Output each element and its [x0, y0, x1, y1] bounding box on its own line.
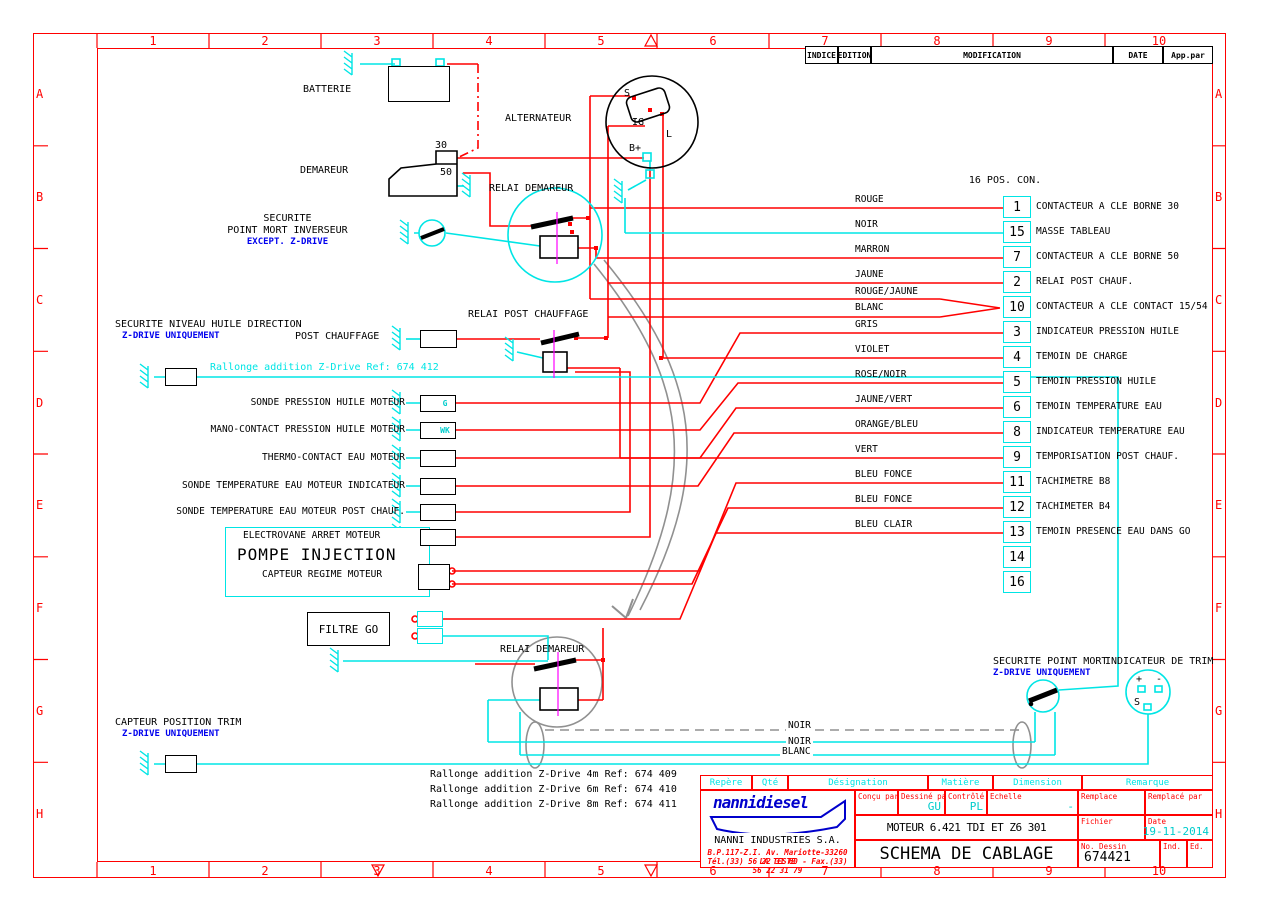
connector-desc: TACHIMETER B4: [1036, 502, 1110, 512]
connector-pin-16: 16: [1003, 571, 1031, 593]
red-wires: [412, 64, 1003, 710]
connector-desc: MASSE TABLEAU: [1036, 227, 1110, 237]
grid-col-label-bottom: 2: [257, 864, 273, 878]
battery-box: [388, 66, 450, 102]
grid-row-label-right: D: [1215, 396, 1222, 410]
harness-wire-label: NOIR: [786, 721, 813, 731]
tb-logo-cell: nannidiesel NANNI INDUSTRIES S.A. B.P.11…: [700, 790, 855, 868]
connector-pin-1: 1: [1003, 196, 1031, 218]
grid-col-label-bottom: 4: [481, 864, 497, 878]
tb-remplace: Remplace: [1078, 790, 1145, 815]
tb-col-dimension: Dimension: [993, 775, 1082, 790]
tb-concu: Conçu par: [855, 790, 898, 815]
grid-row-label-right: H: [1215, 807, 1222, 821]
harness-wire-label: BLANC: [780, 747, 813, 757]
starter-relay-label: RELAI DEMAREUR: [489, 183, 573, 194]
tb-col-qte: Qté: [752, 775, 788, 790]
extension-412-label: Rallonge addition Z-Drive Ref: 674 412: [210, 362, 439, 373]
glow-plug-box: [420, 330, 457, 348]
grid-row-label-left: E: [36, 498, 43, 512]
connector-pin-9: 9: [1003, 446, 1031, 468]
trim-indicator-label: INDICATEUR DE TRIM: [1105, 656, 1213, 667]
revision-edition: EDITION: [838, 46, 871, 64]
connector-pin-5: 5: [1003, 371, 1031, 393]
grid-col-label-bottom: 9: [1041, 864, 1057, 878]
rpm-sensor-label: CAPTEUR REGIME MOTEUR: [262, 570, 382, 580]
grid-row-label-right: C: [1215, 293, 1222, 307]
tb-col-remarque: Remarque: [1082, 775, 1213, 790]
sensor-box: [420, 504, 456, 521]
black-components: [389, 71, 1057, 710]
oil-level-safety-note: Z-DRIVE UNIQUEMENT: [122, 332, 220, 342]
grid-col-label-bottom: 3: [369, 864, 385, 878]
grid-row-label-left: D: [36, 396, 43, 410]
relay-top-circle: [508, 188, 602, 282]
tb-ed: Ed.: [1187, 840, 1213, 868]
grid-row-label-left: H: [36, 807, 43, 821]
extension-ref-line: Rallonge addition Z-Drive 8m Ref: 674 41…: [430, 799, 677, 810]
trim-position-sensor-box: [165, 755, 197, 773]
connector-wire-label: GRIS: [855, 320, 878, 330]
grid-col-label-top: 10: [1151, 34, 1167, 48]
connector-wire-label: JAUNE: [855, 270, 884, 280]
connector-pin-8: 8: [1003, 421, 1031, 443]
connector-wire-label: BLEU CLAIR: [855, 520, 912, 530]
connector-pin-10: 10: [1003, 296, 1031, 318]
tb-no-dessin: No. Dessin674421: [1078, 840, 1160, 868]
starter-label: DEMAREUR: [300, 165, 348, 176]
tb-col-matiere: Matière: [928, 775, 993, 790]
rpm-sensor-box: [418, 564, 450, 590]
grid-col-label-bottom: 10: [1151, 864, 1167, 878]
revision-modification: MODIFICATION: [871, 46, 1113, 64]
tb-controle: Contrôlé parPL: [945, 790, 987, 815]
connector-desc: RELAI POST CHAUF.: [1036, 277, 1133, 287]
connector-pin-2: 2: [1003, 271, 1031, 293]
tb-echelle: Echelle-: [987, 790, 1078, 815]
sensor-label: SONDE TEMPERATURE EAU MOTEUR INDICATEUR: [110, 481, 405, 491]
sensor-tag: WK: [436, 426, 454, 435]
magenta-lines: [554, 212, 558, 716]
grid-row-label-right: G: [1215, 704, 1222, 718]
connector-pin-13: 13: [1003, 521, 1031, 543]
alt-terminal-s: S: [624, 88, 630, 99]
tb-dessine: Dessiné parGU: [898, 790, 945, 815]
grid-col-label-top: 9: [1041, 34, 1057, 48]
grid-row-label-left: B: [36, 190, 43, 204]
glow-relay-label: RELAI POST CHAUFFAGE: [468, 309, 588, 320]
trim-position-sensor-label: CAPTEUR POSITION TRIM: [115, 717, 241, 728]
connector-desc: TEMOIN DE CHARGE: [1036, 352, 1128, 362]
grid-col-label-top: 6: [705, 34, 721, 48]
connector-wire-label: JAUNE/VERT: [855, 395, 912, 405]
tb-col-designation: Désignation: [788, 775, 928, 790]
tb-col-repere: Repère: [700, 775, 752, 790]
starter-relay-bottom-label: RELAI DEMAREUR: [500, 644, 584, 655]
connector-desc: CONTACTEUR A CLE BORNE 30: [1036, 202, 1179, 212]
fuel-filter-label: FILTRE GO: [319, 623, 379, 636]
tb-date: Date19-11-2014: [1145, 815, 1213, 840]
sensor-tag: G: [436, 399, 454, 408]
connector-wire-label: BLEU FONCE: [855, 495, 912, 505]
connector-pin-4: 4: [1003, 346, 1031, 368]
trim-gauge-circle: [1126, 670, 1170, 714]
connector-wire-label: ORANGE/BLEU: [855, 420, 918, 430]
company-name: NANNI INDUSTRIES S.A.: [701, 835, 854, 846]
neutral-safety-bottom-note: Z-DRIVE UNIQUEMENT: [993, 669, 1091, 679]
connector-pin-12: 12: [1003, 496, 1031, 518]
grid-row-label-right: B: [1215, 190, 1222, 204]
connector-pin-7: 7: [1003, 246, 1031, 268]
trim-sender-symbol: S: [1134, 697, 1140, 708]
connector-desc: TEMOIN PRESSION HUILE: [1036, 377, 1156, 387]
grid-col-label-bottom: 5: [593, 864, 609, 878]
connector-pin-3: 3: [1003, 321, 1031, 343]
connector-desc: INDICATEUR TEMPERATURE EAU: [1036, 427, 1185, 437]
grid-row-label-left: C: [36, 293, 43, 307]
alternator-label: ALTERNATEUR: [505, 113, 571, 124]
connector-desc: CONTACTEUR A CLE CONTACT 15/54: [1036, 302, 1208, 312]
connector-wire-label: MARRON: [855, 245, 889, 255]
connector-wire-label: ROUGE: [855, 195, 884, 205]
oil-level-safety-box: [165, 368, 197, 386]
neutral-safety-bottom-label: SECURITE POINT MORT: [993, 656, 1107, 667]
grid-col-label-bottom: 7: [817, 864, 833, 878]
sensor-box: [420, 478, 456, 495]
alt-terminal-l: L: [666, 129, 672, 140]
fuel-filter-conn-top: [417, 611, 443, 627]
fuel-filter-box: FILTRE GO: [307, 612, 390, 646]
connector-wire-label: VIOLET: [855, 345, 889, 355]
connector-wire-label: BLEU FONCE: [855, 470, 912, 480]
alt-terminal-ig: IG: [632, 117, 644, 128]
gray-elements: [512, 260, 1031, 768]
connector-desc: CONTACTEUR A CLE BORNE 50: [1036, 252, 1179, 262]
revision-app-par: App.par: [1163, 46, 1213, 64]
neutral-safety-title2: POINT MORT INVERSEUR: [205, 225, 370, 236]
trim-minus-symbol: -: [1156, 674, 1162, 685]
grid-row-label-right: A: [1215, 87, 1222, 101]
connector-wire-label: ROUGE/JAUNE: [855, 287, 918, 297]
grid-col-label-top: 8: [929, 34, 945, 48]
neutral-safety-title1: SECURITE: [205, 213, 370, 224]
alt-terminal-bplus: B+: [629, 143, 641, 154]
connector-pin-6: 6: [1003, 396, 1031, 418]
title-block: Repère Qté Désignation Matière Dimension…: [700, 775, 1213, 868]
grid-row-label-left: G: [36, 704, 43, 718]
trim-plus-symbol: +: [1136, 674, 1142, 685]
grid-row-label-right: E: [1215, 498, 1222, 512]
grid-col-label-bottom: 6: [705, 864, 721, 878]
connector-wire-label: VERT: [855, 445, 878, 455]
fuel-filter-conn-bottom: [417, 628, 443, 644]
revision-indice: INDICE: [805, 46, 838, 64]
connector-pin-14: 14: [1003, 546, 1031, 568]
grid-col-label-top: 7: [817, 34, 833, 48]
tb-engine-model: MOTEUR 6.421 TDI ET Z6 301: [855, 815, 1078, 840]
connector-wire-label: ROSE/NOIR: [855, 370, 906, 380]
glow-plug-label: POST CHAUFFAGE: [295, 331, 379, 342]
grid-col-label-top: 2: [257, 34, 273, 48]
grid-row-label-left: F: [36, 601, 43, 615]
connector-desc: INDICATEUR PRESSION HUILE: [1036, 327, 1179, 337]
grid-col-label-top: 4: [481, 34, 497, 48]
connector-desc: TEMOIN TEMPERATURE EAU: [1036, 402, 1162, 412]
connector-pin-15: 15: [1003, 221, 1031, 243]
grid-row-label-right: F: [1215, 601, 1222, 615]
grid-col-label-top: 5: [593, 34, 609, 48]
connector-title: 16 POS. CON.: [950, 175, 1060, 186]
grid-col-label-bottom: 1: [145, 864, 161, 878]
injection-pump-label: POMPE INJECTION: [237, 546, 397, 564]
connector-desc: TACHIMETRE B8: [1036, 477, 1110, 487]
starter-terminal-30: 30: [435, 140, 447, 151]
connector-desc: TEMPORISATION POST CHAUF.: [1036, 452, 1179, 462]
extension-ref-line: Rallonge addition Z-Drive 6m Ref: 674 41…: [430, 784, 677, 795]
schematic-sheet: INDICE EDITION MODIFICATION DATE App.par…: [0, 0, 1286, 910]
neutral-safety-note: EXCEPT. Z-DRIVE: [205, 238, 370, 248]
nanni-logo-text: nannidiesel: [713, 793, 808, 812]
battery-label: BATTERIE: [303, 84, 351, 95]
connector-wire-label: NOIR: [855, 220, 878, 230]
connector-pin-11: 11: [1003, 471, 1031, 493]
connector-wire-label: BLANC: [855, 303, 884, 313]
grid-col-label-bottom: 8: [929, 864, 945, 878]
oil-level-safety-label: SECURITE NIVEAU HUILE DIRECTION: [115, 319, 302, 330]
connector-desc: TEMOIN PRESENCE EAU DANS GO: [1036, 527, 1190, 537]
stop-solenoid-box: [420, 529, 456, 546]
grid-row-label-left: A: [36, 87, 43, 101]
sensor-label: THERMO-CONTACT EAU MOTEUR: [110, 453, 405, 463]
sensor-box: [420, 450, 456, 467]
revision-date: DATE: [1113, 46, 1163, 64]
tb-fichier: Fichier: [1078, 815, 1145, 840]
grid-col-label-top: 1: [145, 34, 161, 48]
stop-solenoid-label: ELECTROVANE ARRET MOTEUR: [243, 531, 380, 541]
sensor-label: MANO-CONTACT PRESSION HUILE MOTEUR: [110, 425, 405, 435]
tb-remplace-par: Remplacé par: [1145, 790, 1213, 815]
extension-ref-line: Rallonge addition Z-Drive 4m Ref: 674 40…: [430, 769, 677, 780]
trim-position-sensor-note: Z-DRIVE UNIQUEMENT: [122, 730, 220, 740]
grid-col-label-top: 3: [369, 34, 385, 48]
sensor-label: SONDE PRESSION HUILE MOTEUR: [110, 398, 405, 408]
starter-terminal-50: 50: [440, 167, 452, 178]
sensor-label: SONDE TEMPERATURE EAU MOTEUR POST CHAUF.: [110, 507, 405, 517]
